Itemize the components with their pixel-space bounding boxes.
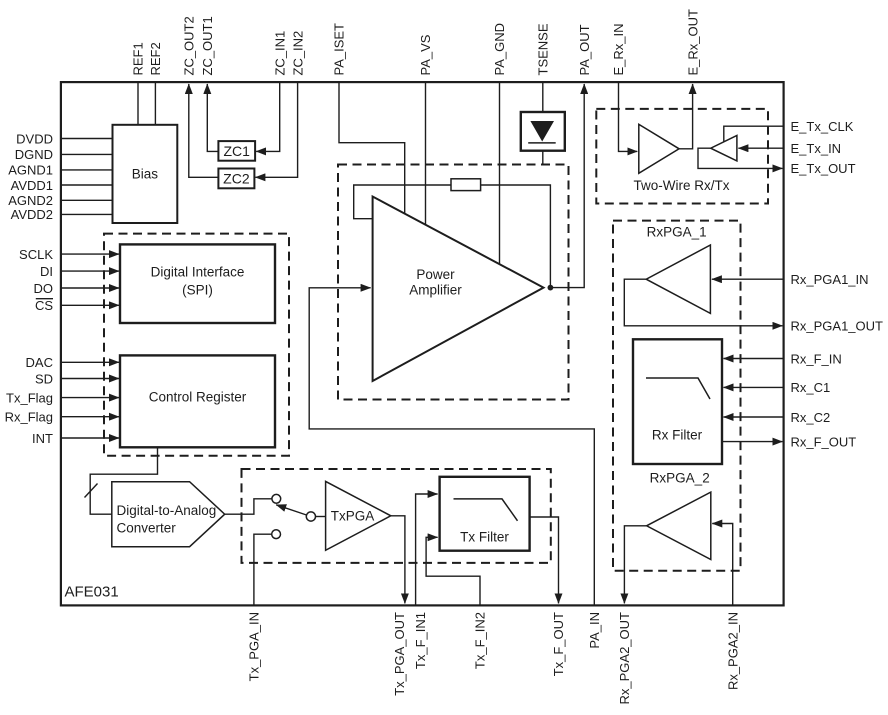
svg-text:Rx_PGA1_OUT: Rx_PGA1_OUT (791, 319, 884, 334)
svg-text:AGND2: AGND2 (8, 193, 53, 208)
svg-text:PA_VS: PA_VS (418, 34, 433, 75)
svg-text:Tx Filter: Tx Filter (460, 530, 509, 545)
svg-text:ZC1: ZC1 (223, 143, 250, 159)
svg-text:AVDD2: AVDD2 (11, 207, 53, 222)
svg-text:INT: INT (32, 431, 53, 446)
svg-text:DO: DO (34, 281, 54, 296)
svg-text:Rx_PGA2_IN: Rx_PGA2_IN (725, 612, 740, 690)
svg-text:E_Rx_IN: E_Rx_IN (611, 23, 626, 75)
svg-text:(SPI): (SPI) (182, 283, 213, 298)
svg-text:Converter: Converter (117, 521, 177, 536)
svg-text:RxPGA_1: RxPGA_1 (647, 225, 707, 240)
svg-text:DI: DI (40, 264, 53, 279)
svg-text:CS: CS (35, 298, 53, 313)
svg-text:Control Register: Control Register (149, 390, 247, 405)
svg-text:Two-Wire Rx/Tx: Two-Wire Rx/Tx (634, 178, 730, 193)
svg-text:Tx_F_IN2: Tx_F_IN2 (473, 612, 488, 669)
svg-text:PA_OUT: PA_OUT (577, 24, 592, 75)
svg-text:Bias: Bias (132, 167, 159, 182)
svg-text:Rx_F_IN: Rx_F_IN (791, 351, 842, 366)
svg-text:E_Tx_IN: E_Tx_IN (791, 141, 842, 156)
svg-text:Tx_PGA_OUT: Tx_PGA_OUT (392, 612, 407, 696)
svg-text:E_Tx_CLK: E_Tx_CLK (791, 119, 854, 134)
svg-text:Rx_F_OUT: Rx_F_OUT (791, 434, 857, 449)
svg-text:DAC: DAC (26, 355, 53, 370)
svg-text:ZC2: ZC2 (223, 170, 250, 186)
svg-text:REF1: REF1 (131, 42, 146, 75)
svg-text:SD: SD (35, 371, 53, 386)
svg-text:ZC_IN1: ZC_IN1 (272, 31, 287, 76)
svg-text:Rx_Flag: Rx_Flag (5, 410, 53, 425)
svg-text:ZC_IN2: ZC_IN2 (290, 31, 305, 76)
svg-text:Rx_PGA2_OUT: Rx_PGA2_OUT (617, 612, 632, 705)
svg-text:ZC_OUT2: ZC_OUT2 (182, 16, 197, 75)
svg-text:PA_ISET: PA_ISET (332, 23, 347, 76)
svg-text:TxPGA: TxPGA (331, 509, 375, 524)
svg-text:Rx_C1: Rx_C1 (791, 380, 831, 395)
svg-text:AVDD1: AVDD1 (11, 178, 53, 193)
svg-text:AFE031: AFE031 (65, 584, 119, 601)
svg-text:DGND: DGND (15, 147, 53, 162)
svg-text:Rx_C2: Rx_C2 (791, 410, 831, 425)
svg-text:ZC_OUT1: ZC_OUT1 (200, 16, 215, 75)
svg-text:E_Rx_OUT: E_Rx_OUT (685, 9, 700, 76)
svg-text:AGND1: AGND1 (8, 163, 53, 178)
svg-text:Tx_PGA_IN: Tx_PGA_IN (247, 612, 262, 681)
svg-text:Tx_F_IN1: Tx_F_IN1 (413, 612, 428, 669)
svg-text:Rx_PGA1_IN: Rx_PGA1_IN (791, 272, 869, 287)
svg-text:SCLK: SCLK (19, 247, 53, 262)
svg-text:PA_GND: PA_GND (492, 23, 507, 76)
svg-text:Power: Power (416, 267, 455, 282)
svg-text:Digital-to-Analog: Digital-to-Analog (117, 503, 217, 518)
svg-text:Tx_F_OUT: Tx_F_OUT (551, 612, 566, 676)
svg-text:PA_IN: PA_IN (587, 612, 602, 649)
svg-text:REF2: REF2 (148, 42, 163, 75)
svg-text:TSENSE: TSENSE (536, 23, 551, 75)
svg-text:Amplifier: Amplifier (409, 283, 462, 298)
svg-text:DVDD: DVDD (16, 131, 53, 146)
svg-text:Digital Interface: Digital Interface (151, 265, 245, 280)
svg-text:E_Tx_OUT: E_Tx_OUT (791, 161, 856, 176)
svg-text:Rx Filter: Rx Filter (652, 427, 703, 442)
svg-text:Tx_Flag: Tx_Flag (6, 390, 53, 405)
svg-text:RxPGA_2: RxPGA_2 (650, 471, 710, 486)
